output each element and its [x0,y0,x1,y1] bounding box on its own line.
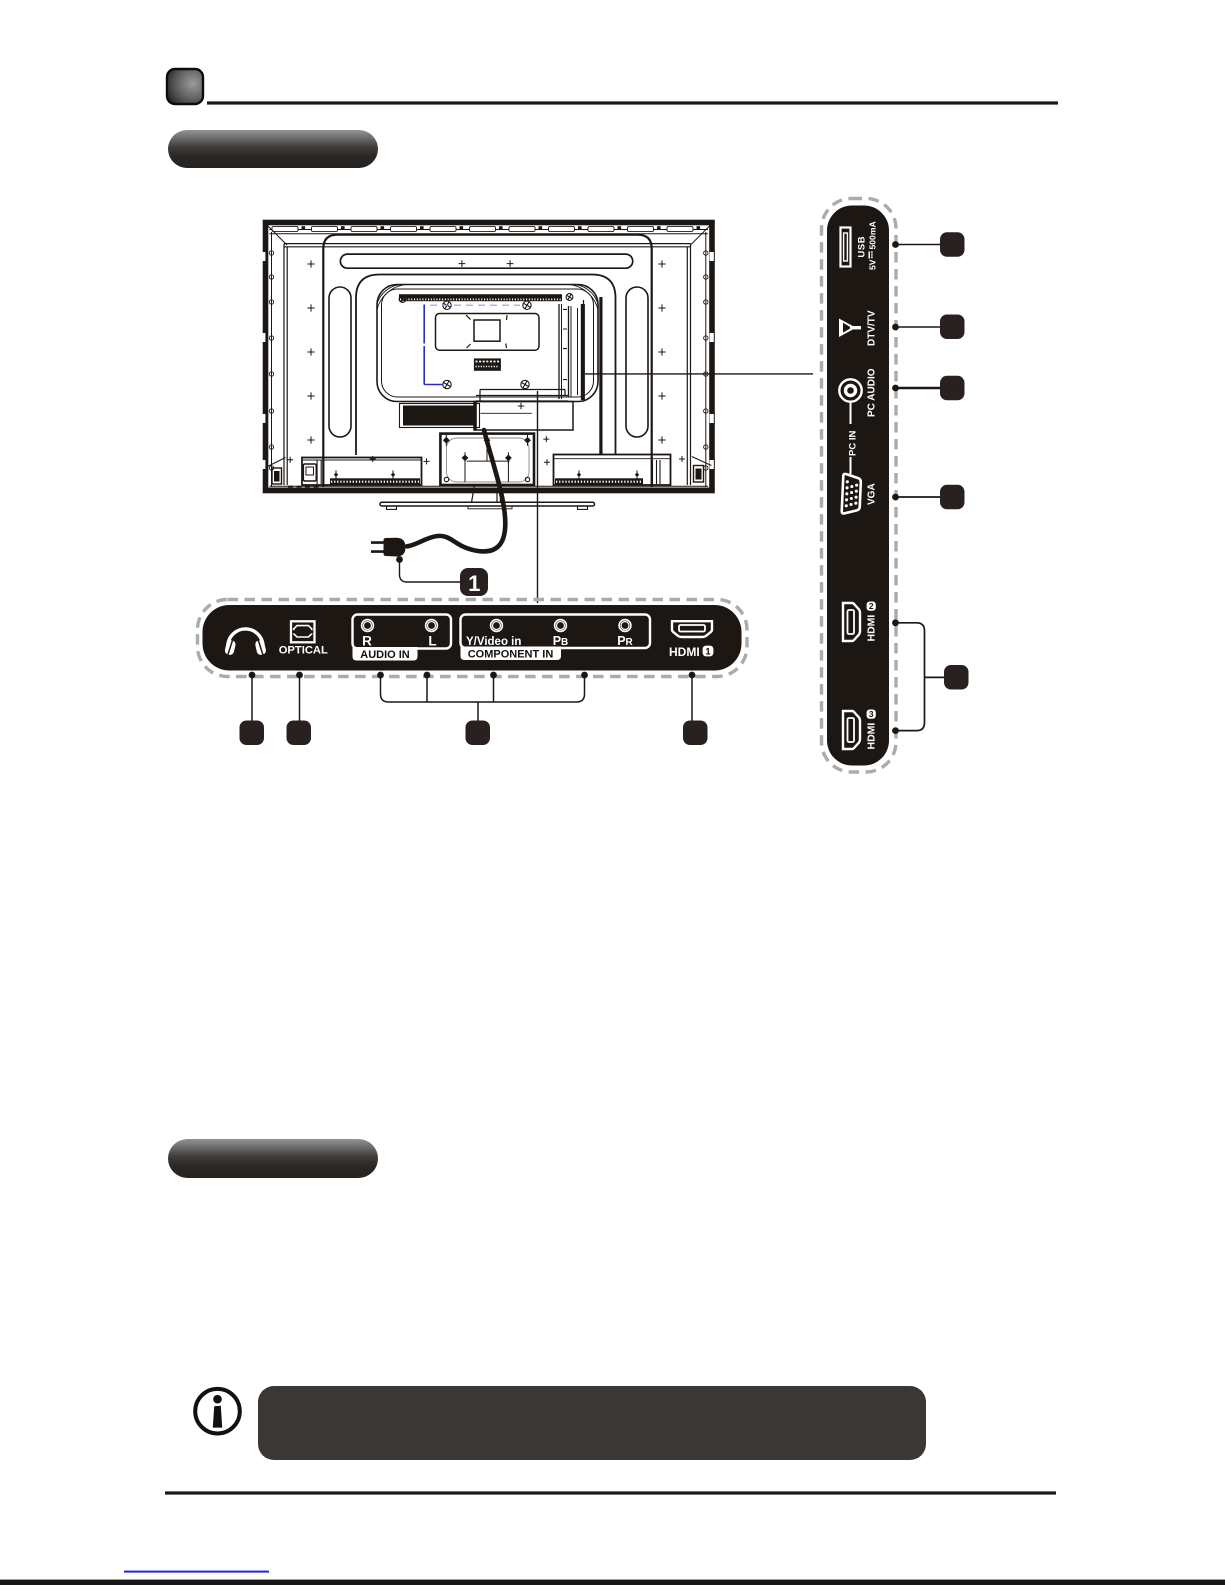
svg-text:PC AUDIO: PC AUDIO [867,368,878,417]
svg-text:PC IN: PC IN [848,431,859,456]
svg-text:2: 2 [869,601,874,611]
svg-text:Y/Video in: Y/Video in [466,636,521,648]
svg-text:USB: USB [856,236,867,258]
svg-text:L: L [428,634,436,649]
svg-text:HDMI: HDMI [866,615,878,642]
svg-text:3: 3 [869,709,874,719]
svg-text:1: 1 [468,571,480,596]
svg-text:COMPONENT IN: COMPONENT IN [468,649,554,661]
svg-text:PB: PB [553,634,569,648]
svg-text:HDMI: HDMI [669,645,700,659]
svg-text:HDMI: HDMI [866,723,878,750]
svg-text:VGA: VGA [867,483,878,505]
svg-text:500mA: 500mA [868,221,878,249]
svg-text:5V: 5V [868,259,878,270]
svg-text:R: R [362,634,372,649]
svg-text:1: 1 [705,646,711,657]
svg-text:OPTICAL: OPTICAL [279,645,328,657]
svg-text:PR: PR [617,634,633,648]
svg-text:DTV/TV: DTV/TV [867,310,878,346]
svg-text:AUDIO IN: AUDIO IN [360,649,410,661]
